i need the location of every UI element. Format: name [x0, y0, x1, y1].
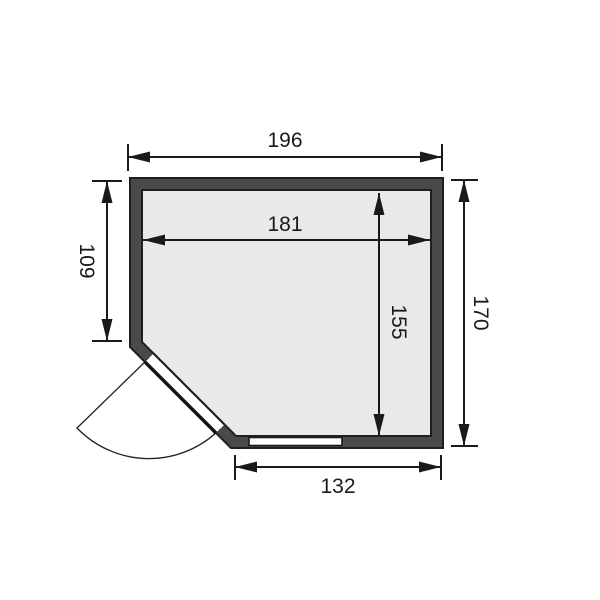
dimension-outer-width: 196: [128, 129, 442, 171]
arrowhead-left-icon: [235, 462, 257, 473]
floor-plan-canvas: 196 109 170 181 155 132: [0, 0, 600, 600]
arrowhead-left-icon: [128, 152, 150, 163]
arrowhead-up-icon: [102, 181, 113, 203]
dimension-outer-height: 170: [451, 180, 492, 446]
arrowhead-right-icon: [420, 152, 442, 163]
dim-label-inner-height: 155: [387, 304, 410, 339]
dim-label-inner-width: 181: [267, 213, 302, 236]
dimension-left-height: 109: [75, 181, 122, 341]
floor-plan-diagram: 196 109 170 181 155 132: [0, 0, 600, 600]
dim-label-outer-height: 170: [469, 295, 492, 330]
window-strip: [249, 438, 342, 446]
arrowhead-down-icon: [459, 424, 470, 446]
arrowhead-right-icon: [419, 462, 441, 473]
dimension-bottom-width: 132: [235, 455, 441, 498]
arrowhead-down-icon: [102, 319, 113, 341]
dim-label-bottom-width: 132: [320, 475, 355, 498]
arrowhead-up-icon: [459, 180, 470, 202]
dim-label-outer-width: 196: [267, 129, 302, 152]
dim-label-left-height: 109: [75, 243, 98, 278]
